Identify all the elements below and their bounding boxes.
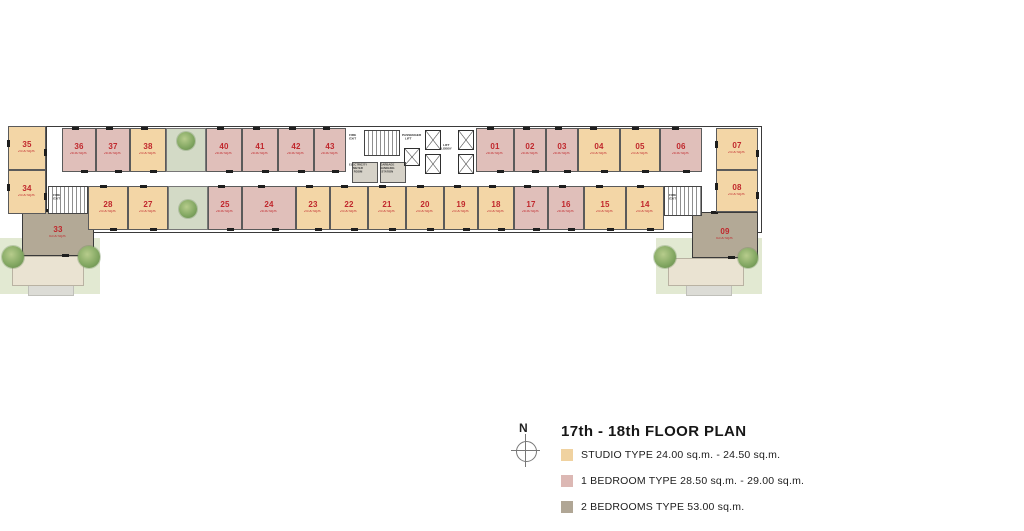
unit-02: 02 28.50 sq.m. (514, 128, 546, 172)
terrace-right (668, 258, 744, 286)
fire-exit-stairs-core (364, 130, 400, 156)
unit-area: 28.50 sq.m. (521, 152, 538, 155)
unit-area: 24.00 sq.m. (590, 152, 607, 155)
unit-number: 41 (255, 143, 264, 151)
unit-area: 24.00 sq.m. (728, 151, 745, 154)
unit-number: 34 (22, 185, 31, 193)
lift-shaft (458, 130, 474, 150)
legend-label: 2 BEDROOMS TYPE 53.00 sq.m. (581, 501, 744, 513)
unit-area: 24.00 sq.m. (728, 193, 745, 196)
unit-18: 18 24.00 sq.m. (478, 186, 514, 230)
unit-number: 02 (525, 143, 534, 151)
legend-label: 1 BEDROOM TYPE 28.50 sq.m. - 29.00 sq.m. (581, 475, 804, 487)
lift-shaft (425, 154, 441, 174)
unit-area: 24.00 sq.m. (18, 194, 35, 197)
unit-number: 22 (344, 201, 353, 209)
unit-area: 24.00 sq.m. (304, 210, 321, 213)
unit-22: 22 24.00 sq.m. (330, 186, 368, 230)
unit-area: 28.50 sq.m. (486, 152, 503, 155)
floor-plan-page: 33 53.00 sq.m. 09 53.00 sq.m. 35 24.00 s… (0, 0, 1024, 531)
unit-area: 28.50 sq.m. (321, 152, 338, 155)
tree-icon (2, 246, 24, 268)
unit-number: 27 (143, 201, 152, 209)
passenger-lift-shaft (404, 148, 420, 166)
unit-41: 41 28.50 sq.m. (242, 128, 278, 172)
unit-area: 28.50 sq.m. (287, 152, 304, 155)
unit-number: 15 (600, 201, 609, 209)
unit-area: 24.00 sq.m. (596, 210, 613, 213)
unit-15: 15 24.00 sq.m. (584, 186, 626, 230)
unit-number: 01 (490, 143, 499, 151)
unit-area: 28.50 sq.m. (215, 152, 232, 155)
unit-17: 17 28.50 sq.m. (514, 186, 548, 230)
unit-number: 16 (561, 201, 570, 209)
unit-40: 40 28.50 sq.m. (206, 128, 242, 172)
unit-04: 04 24.00 sq.m. (578, 128, 620, 172)
unit-number: 05 (635, 143, 644, 151)
unit-area: 28.50 sq.m. (260, 210, 277, 213)
two-bedrooms-color-swatch (561, 501, 573, 513)
unit-21: 21 24.00 sq.m. (368, 186, 406, 230)
unit-number: 14 (640, 201, 649, 209)
unit-28: 28 24.00 sq.m. (88, 186, 128, 230)
unit-42: 42 28.50 sq.m. (278, 128, 314, 172)
unit-38: 38 24.00 sq.m. (130, 128, 166, 172)
unit-area: 24.00 sq.m. (487, 210, 504, 213)
unit-area: 28.50 sq.m. (70, 152, 87, 155)
unit-01: 01 28.50 sq.m. (476, 128, 514, 172)
unit-area: 24.00 sq.m. (139, 152, 156, 155)
unit-43: 43 28.50 sq.m. (314, 128, 346, 172)
unit-area: 24.00 sq.m. (416, 210, 433, 213)
unit-area: 28.50 sq.m. (672, 152, 689, 155)
unit-area: 28.50 sq.m. (553, 152, 570, 155)
fire-exit-label: FIRE EXIT (52, 194, 61, 201)
one-bedroom-color-swatch (561, 475, 573, 487)
electricity-meter-label: ELECTRICITY METER ROOM (349, 164, 367, 173)
unit-area: 28.50 sq.m. (522, 210, 539, 213)
unit-number: 33 (53, 226, 62, 234)
unit-number: 04 (594, 143, 603, 151)
tree-icon (738, 248, 758, 268)
lift-shaft (458, 154, 474, 174)
unit-number: 28 (103, 201, 112, 209)
unit-27: 27 24.00 sq.m. (128, 186, 168, 230)
unit-19: 19 24.00 sq.m. (444, 186, 478, 230)
garbage-room: GARBAGE HANDLING STATION (380, 162, 406, 183)
unit-number: 35 (22, 141, 31, 149)
unit-area: 28.50 sq.m. (104, 152, 121, 155)
tree-icon (177, 132, 195, 150)
unit-number: 25 (220, 201, 229, 209)
unit-area: 53.00 sq.m. (716, 237, 733, 240)
unit-24: 24 28.50 sq.m. (242, 186, 296, 230)
unit-area: 24.00 sq.m. (452, 210, 469, 213)
unit-number: 06 (676, 143, 685, 151)
unit-35: 35 24.00 sq.m. (8, 126, 46, 170)
unit-number: 21 (382, 201, 391, 209)
unit-number: 24 (264, 201, 273, 209)
compass-icon (516, 441, 537, 462)
unit-number: 37 (108, 143, 117, 151)
legend-label: STUDIO TYPE 24.00 sq.m. - 24.50 sq.m. (581, 449, 780, 461)
studio-color-swatch (561, 449, 573, 461)
unit-number: 42 (291, 143, 300, 151)
unit-number: 08 (732, 184, 741, 192)
unit-area: 24.00 sq.m. (139, 210, 156, 213)
unit-number: 18 (491, 201, 500, 209)
unit-area: 28.50 sq.m. (251, 152, 268, 155)
legend-item-one-bedroom: 1 BEDROOM TYPE 28.50 sq.m. - 29.00 sq.m. (561, 475, 804, 487)
unit-number: 40 (219, 143, 228, 151)
unit-area: 24.00 sq.m. (631, 152, 648, 155)
unit-number: 09 (720, 228, 729, 236)
unit-25: 25 28.50 sq.m. (208, 186, 242, 230)
north-label: N (519, 421, 528, 435)
unit-area: 28.50 sq.m. (216, 210, 233, 213)
unit-number: 03 (557, 143, 566, 151)
unit-03: 03 28.50 sq.m. (546, 128, 578, 172)
unit-20: 20 24.00 sq.m. (406, 186, 444, 230)
lift-shaft (425, 130, 441, 150)
unit-07: 07 24.00 sq.m. (716, 128, 758, 170)
garbage-label: GARBAGE HANDLING STATION (380, 164, 395, 173)
unit-05: 05 24.00 sq.m. (620, 128, 660, 172)
passenger-lift-label: PASSENGER LIFT (402, 134, 414, 141)
electricity-meter-room: ELECTRICITY METER ROOM (352, 162, 378, 183)
unit-number: 36 (74, 143, 83, 151)
unit-23: 23 24.00 sq.m. (296, 186, 330, 230)
fire-exit-label: FIRE EXIT (348, 134, 357, 141)
fire-exit-label: FIRE EXIT (668, 194, 677, 201)
unit-08: 08 24.00 sq.m. (716, 170, 758, 212)
unit-area: 24.00 sq.m. (340, 210, 357, 213)
unit-area: 28.50 sq.m. (557, 210, 574, 213)
unit-area: 53.00 sq.m. (49, 235, 66, 238)
unit-36: 36 28.50 sq.m. (62, 128, 96, 172)
unit-number: 20 (420, 201, 429, 209)
unit-area: 24.00 sq.m. (18, 150, 35, 153)
unit-number: 43 (325, 143, 334, 151)
legend-item-studio: STUDIO TYPE 24.00 sq.m. - 24.50 sq.m. (561, 449, 780, 461)
unit-number: 17 (526, 201, 535, 209)
unit-14: 14 24.00 sq.m. (626, 186, 664, 230)
tree-icon (654, 246, 676, 268)
unit-16: 16 28.50 sq.m. (548, 186, 584, 230)
legend-item-two-bedrooms: 2 BEDROOMS TYPE 53.00 sq.m. (561, 501, 744, 513)
unit-area: 24.00 sq.m. (636, 210, 653, 213)
unit-37: 37 28.50 sq.m. (96, 128, 130, 172)
unit-number: 38 (143, 143, 152, 151)
unit-area: 24.00 sq.m. (378, 210, 395, 213)
tree-icon (179, 200, 197, 218)
unit-number: 07 (732, 142, 741, 150)
unit-area: 24.00 sq.m. (99, 210, 116, 213)
lift-lobby-label: LIFT LOBBY (441, 144, 452, 151)
tree-icon (78, 246, 100, 268)
unit-06: 06 28.50 sq.m. (660, 128, 702, 172)
page-title: 17th - 18th FLOOR PLAN (561, 423, 746, 440)
unit-number: 23 (308, 201, 317, 209)
unit-34: 34 24.00 sq.m. (8, 170, 46, 214)
unit-number: 19 (456, 201, 465, 209)
